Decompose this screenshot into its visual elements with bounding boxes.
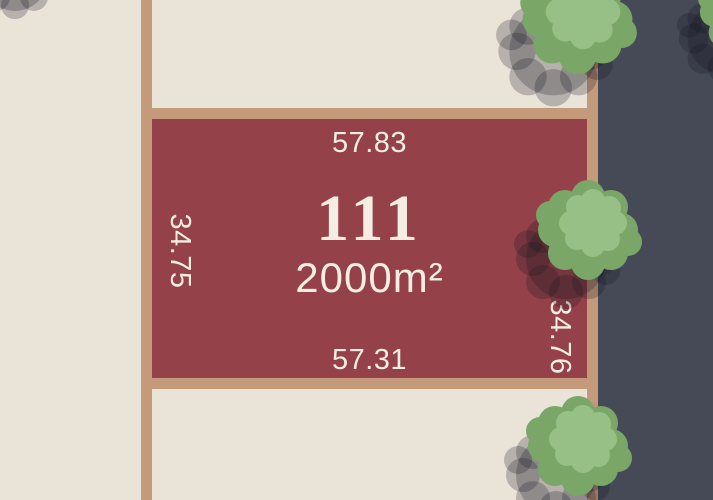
tree-icon-middle xyxy=(503,145,673,315)
tree-icon-right-edge xyxy=(669,0,713,87)
boundary-line-left xyxy=(141,0,152,500)
tree-icon-bottom xyxy=(493,361,663,500)
tree-icon-top xyxy=(484,0,671,113)
subdivision-map: 57.83 111 2000m² 57.31 34.75 34.76 xyxy=(0,0,713,500)
tree-shadow-top-left xyxy=(0,0,85,48)
dimension-left: 34.75 xyxy=(165,206,195,296)
